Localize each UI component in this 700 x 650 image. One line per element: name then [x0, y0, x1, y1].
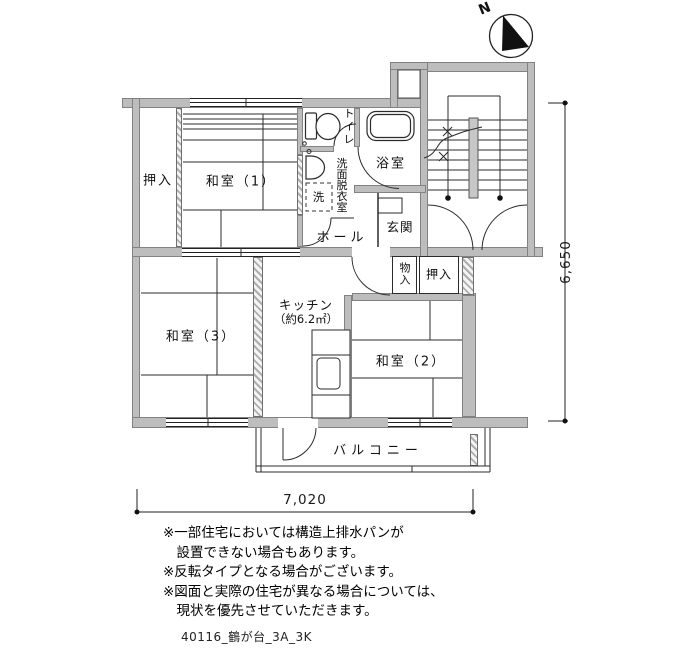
wall-bath-bottom	[354, 185, 426, 193]
room-label-washitsu3: 和室（3）	[166, 326, 236, 345]
window-bottom-washitsu2	[388, 418, 452, 427]
wall-left	[132, 98, 140, 428]
balcony-pipe	[470, 434, 478, 466]
wall-lower-right	[462, 295, 476, 417]
fusuma-washitsu3-kitchen	[253, 257, 263, 417]
fusuma-oshiire2	[462, 257, 474, 295]
wall-washitsu1-right-lower	[297, 215, 303, 247]
wall-stair-right	[527, 62, 535, 257]
room-label-bath: 浴室	[376, 153, 406, 172]
room-label-oshiire1: 押入	[143, 170, 173, 189]
room-label-kitchen-area: （約6.2㎡）	[274, 311, 338, 327]
room-label-toilet: トイレ	[340, 108, 356, 147]
kitchen-door-opening	[352, 247, 390, 257]
dimension-width: 7,020	[283, 492, 327, 508]
note-line: ※反転タイプとなる場合がございます。	[163, 563, 444, 583]
room-label-genkan: 玄関	[386, 217, 413, 236]
room-label-laundry: 洗	[313, 189, 326, 205]
room-label-washitsu1: 和室（1）	[206, 171, 276, 190]
note-line: ※一部住宅においては構造上排水パンが	[163, 524, 444, 544]
window-bottom-washitsu3	[166, 418, 248, 427]
room-label-monoire: 物入	[396, 262, 412, 286]
wall-shaft-top	[390, 62, 428, 70]
fusuma-washitsu1	[297, 155, 303, 215]
toilet-icon	[303, 113, 340, 145]
sliding-opening-washitsu1	[182, 248, 300, 257]
wall-stair-left	[420, 62, 428, 257]
window-top	[190, 98, 302, 107]
room-label-oshiire2: 押入	[426, 266, 452, 283]
wall-toilet-bottom	[300, 146, 334, 152]
note-line: 現状を優先させていただきます。	[163, 602, 444, 622]
note-line: 設置できない場合もあります。	[163, 544, 444, 564]
room-label-senmen: 洗面脱衣室	[333, 158, 349, 213]
room-label-balcony: バルコニー	[333, 440, 423, 459]
stairs	[424, 96, 527, 201]
wall-closet-bottom	[352, 293, 476, 301]
basin-icon	[306, 150, 325, 180]
floorplan-canvas: N 押入 和室（1） トイレ 洗面脱衣室 洗 浴室 ホール 玄関 物入 押入 和…	[0, 0, 700, 650]
plan-filename: 40116_鶴が台_3A_3K	[181, 628, 312, 645]
dimension-height: 6,650	[558, 240, 574, 284]
north-arrow-icon	[490, 15, 533, 58]
wall-stair-top	[420, 62, 535, 72]
balcony-door-opening	[278, 418, 318, 428]
fusuma-oshiire1	[176, 108, 182, 247]
note-line: ※図面と実際の住宅が異なる場合については、	[163, 583, 444, 603]
room-label-washitsu2: 和室（2）	[376, 351, 446, 370]
notes-block: ※一部住宅においては構造上排水パンが 設置できない場合もあります。 ※反転タイプ…	[163, 524, 444, 622]
room-label-hall: ホール	[316, 227, 367, 246]
bathtub-icon	[367, 112, 414, 141]
wall-kitchen-right	[344, 295, 352, 417]
north-label: N	[476, 0, 493, 19]
